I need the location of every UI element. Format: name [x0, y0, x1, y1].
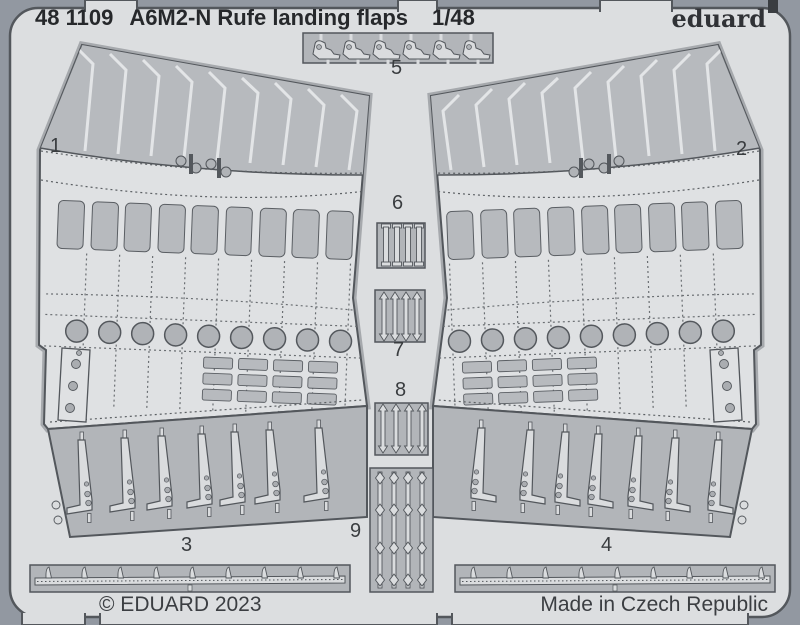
- strips-part-9: [370, 468, 433, 592]
- part-number-4: 4: [601, 534, 612, 557]
- strips-part-6: [377, 223, 425, 268]
- part-number-8: 8: [395, 379, 406, 402]
- flap-part-2: [430, 44, 761, 537]
- part-number-6: 6: [392, 192, 403, 215]
- strips-part-7: [375, 290, 425, 342]
- product-title: A6M2-N Rufe landing flaps: [129, 5, 408, 31]
- hinge-strip-part-3: [30, 565, 350, 592]
- strips-part-8: [375, 403, 428, 455]
- photo-etch-fret-sheet: 48 1109 A6M2-N Rufe landing flaps 1/48 e…: [0, 0, 800, 625]
- part-number-7: 7: [393, 339, 404, 362]
- header-title: 48 1109 A6M2-N Rufe landing flaps 1/48: [35, 5, 475, 31]
- flap-part-1: [39, 44, 370, 537]
- part-number-5: 5: [391, 57, 402, 80]
- catalog-number: 48 1109: [35, 5, 113, 31]
- part-number-9: 9: [350, 520, 361, 543]
- part-number-3: 3: [181, 534, 192, 557]
- part-number-2: 2: [736, 138, 747, 161]
- part-number-1: 1: [50, 135, 61, 158]
- made-in-text: Made in Czech Republic: [540, 593, 768, 617]
- fret-graphic: [0, 0, 800, 625]
- copyright-text: © EDUARD 2023: [99, 593, 262, 617]
- eduard-logo: eduard: [672, 4, 766, 33]
- hinge-strip-part-4: [455, 565, 775, 592]
- scale-label: 1/48: [432, 5, 475, 31]
